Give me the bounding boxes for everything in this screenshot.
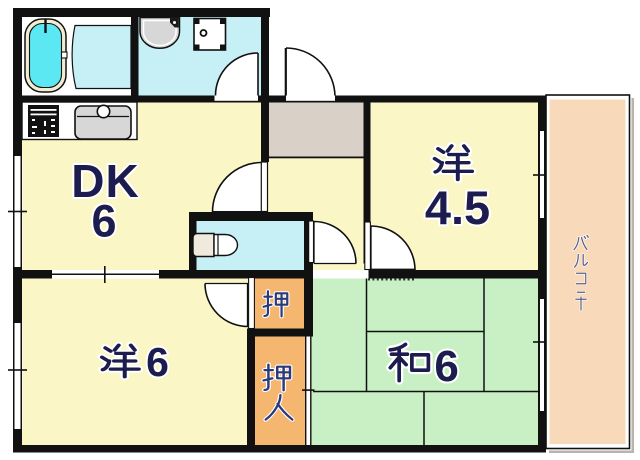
svg-text:6: 6 bbox=[91, 195, 116, 246]
svg-text:6: 6 bbox=[146, 339, 169, 385]
svg-text:4.5: 4.5 bbox=[425, 181, 490, 234]
svg-text:6: 6 bbox=[434, 342, 458, 391]
